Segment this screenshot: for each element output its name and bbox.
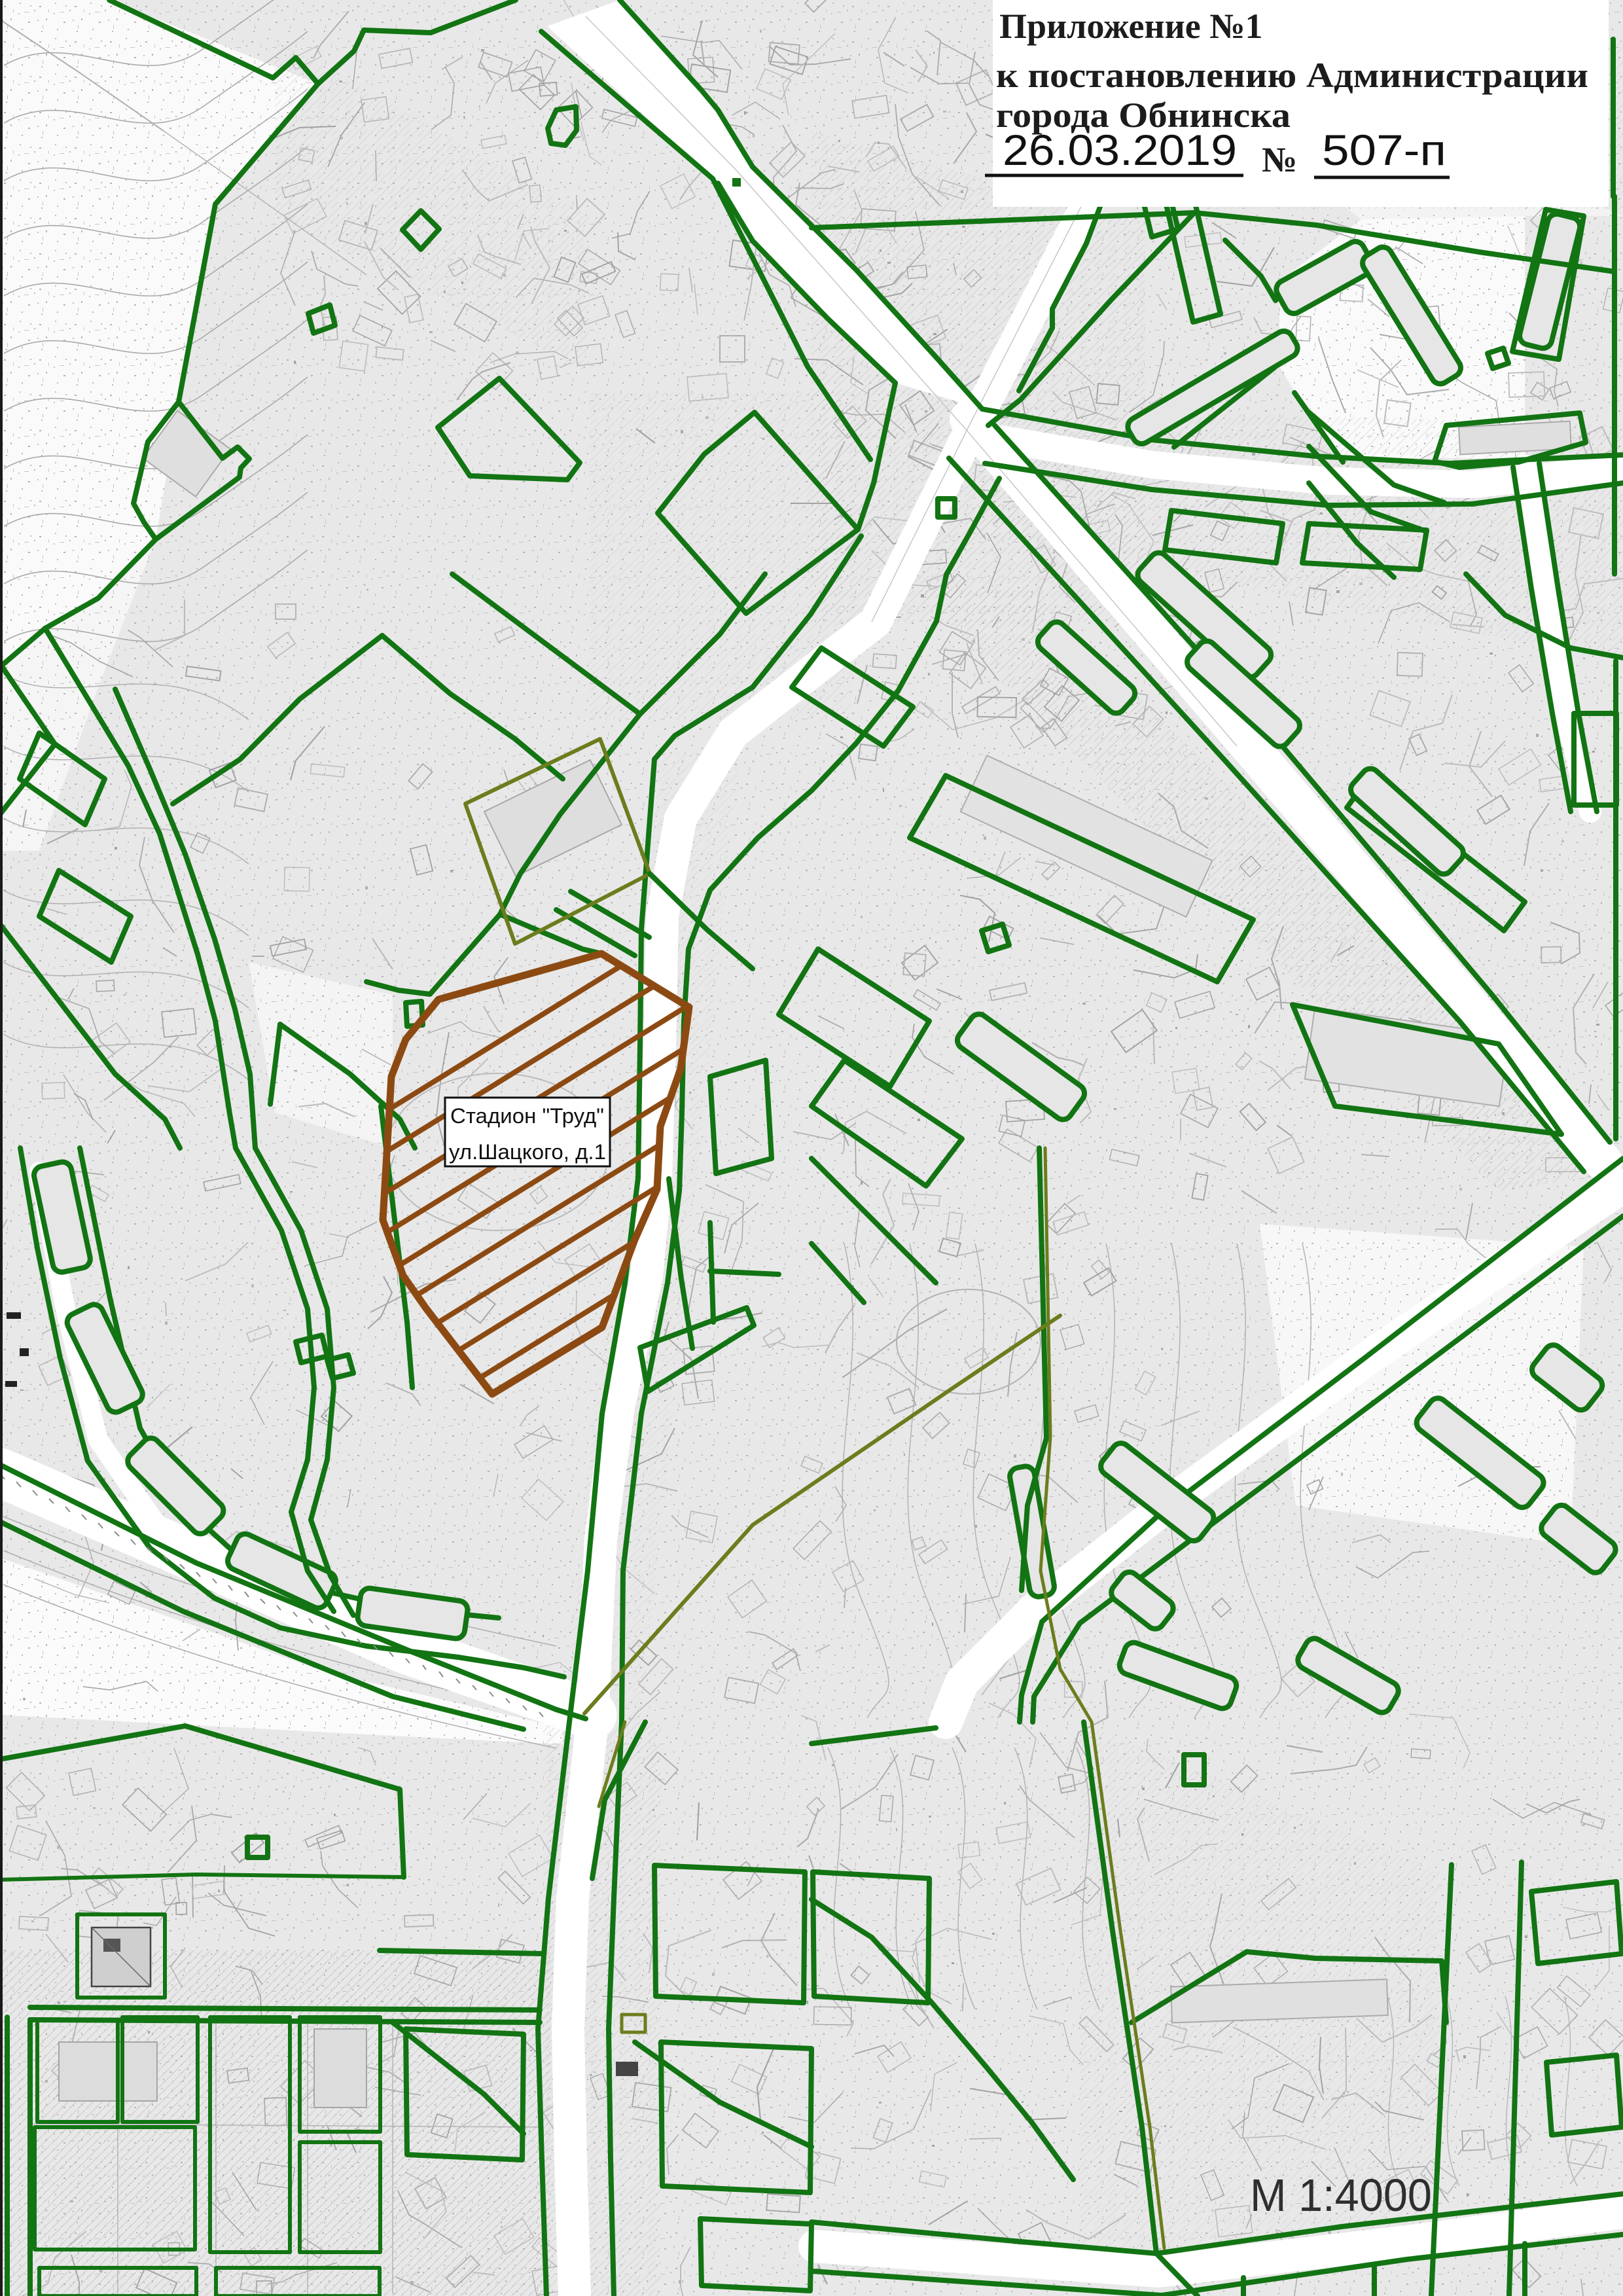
svg-text:№: № — [1262, 140, 1297, 179]
svg-text:Стадион "Труд": Стадион "Труд" — [450, 1104, 604, 1128]
svg-text:ул.Шацкого, д.1: ул.Шацкого, д.1 — [449, 1140, 606, 1164]
svg-text:М 1:4000: М 1:4000 — [1250, 2170, 1432, 2221]
svg-text:507-п: 507-п — [1322, 126, 1446, 174]
svg-text:26.03.2019: 26.03.2019 — [1003, 126, 1237, 174]
svg-text:к постановлению Администрации: к постановлению Администрации — [996, 56, 1588, 95]
svg-text:Приложение №1: Приложение №1 — [999, 7, 1262, 46]
